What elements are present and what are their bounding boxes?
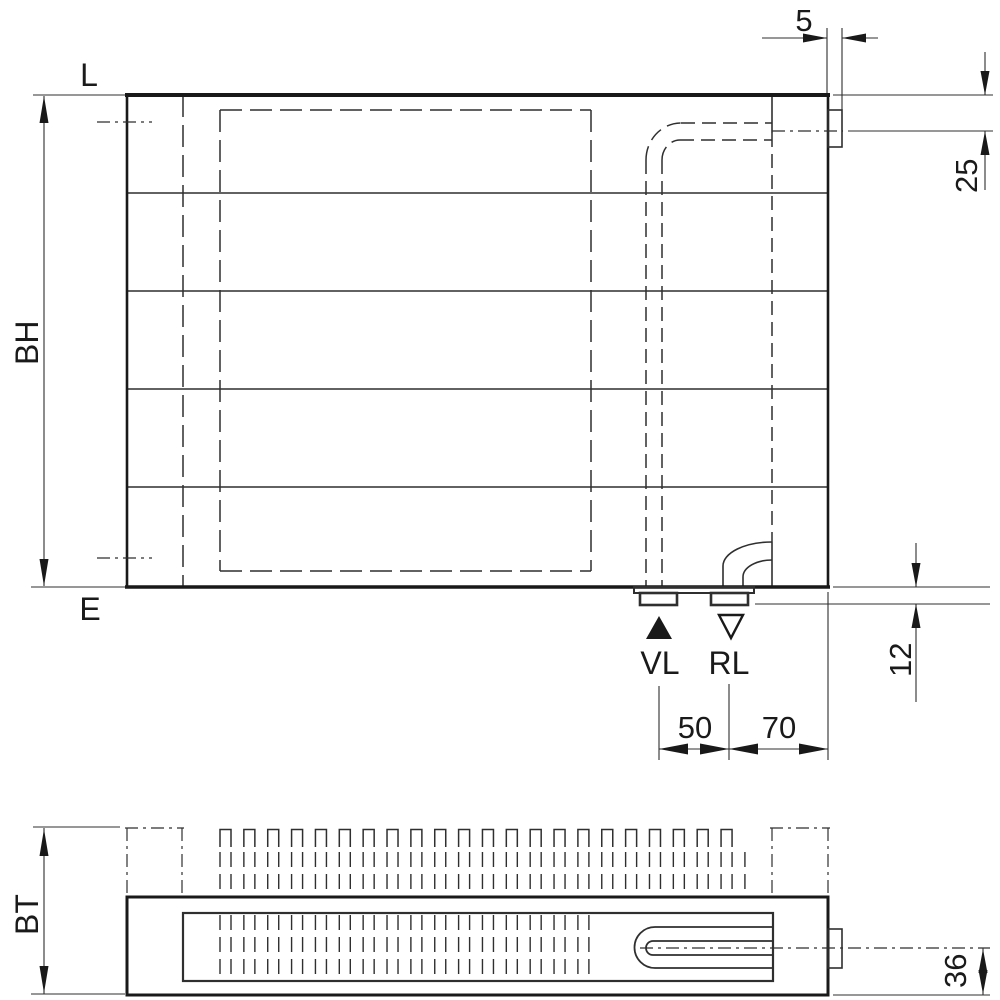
dim-36-label: 36 xyxy=(938,954,973,988)
dim-bh-label: BH xyxy=(9,321,45,365)
dim-25-label: 25 xyxy=(949,159,984,193)
dim-50-label: 50 xyxy=(678,710,712,745)
dim-5-label: 5 xyxy=(795,3,812,38)
label-top-edge: L xyxy=(80,57,98,93)
radiator-dimension-drawing: VL RL L E BH 5 xyxy=(0,0,1000,1000)
technical-drawing-page: VL RL L E BH 5 xyxy=(0,0,1000,1000)
label-bottom-edge: E xyxy=(79,591,100,627)
background xyxy=(0,0,1000,1000)
return-label: RL xyxy=(709,645,750,681)
dim-70-label: 70 xyxy=(762,710,796,745)
dim-bt-label: BT xyxy=(9,894,45,935)
dim-12-label: 12 xyxy=(883,643,918,677)
supply-label: VL xyxy=(640,645,679,681)
